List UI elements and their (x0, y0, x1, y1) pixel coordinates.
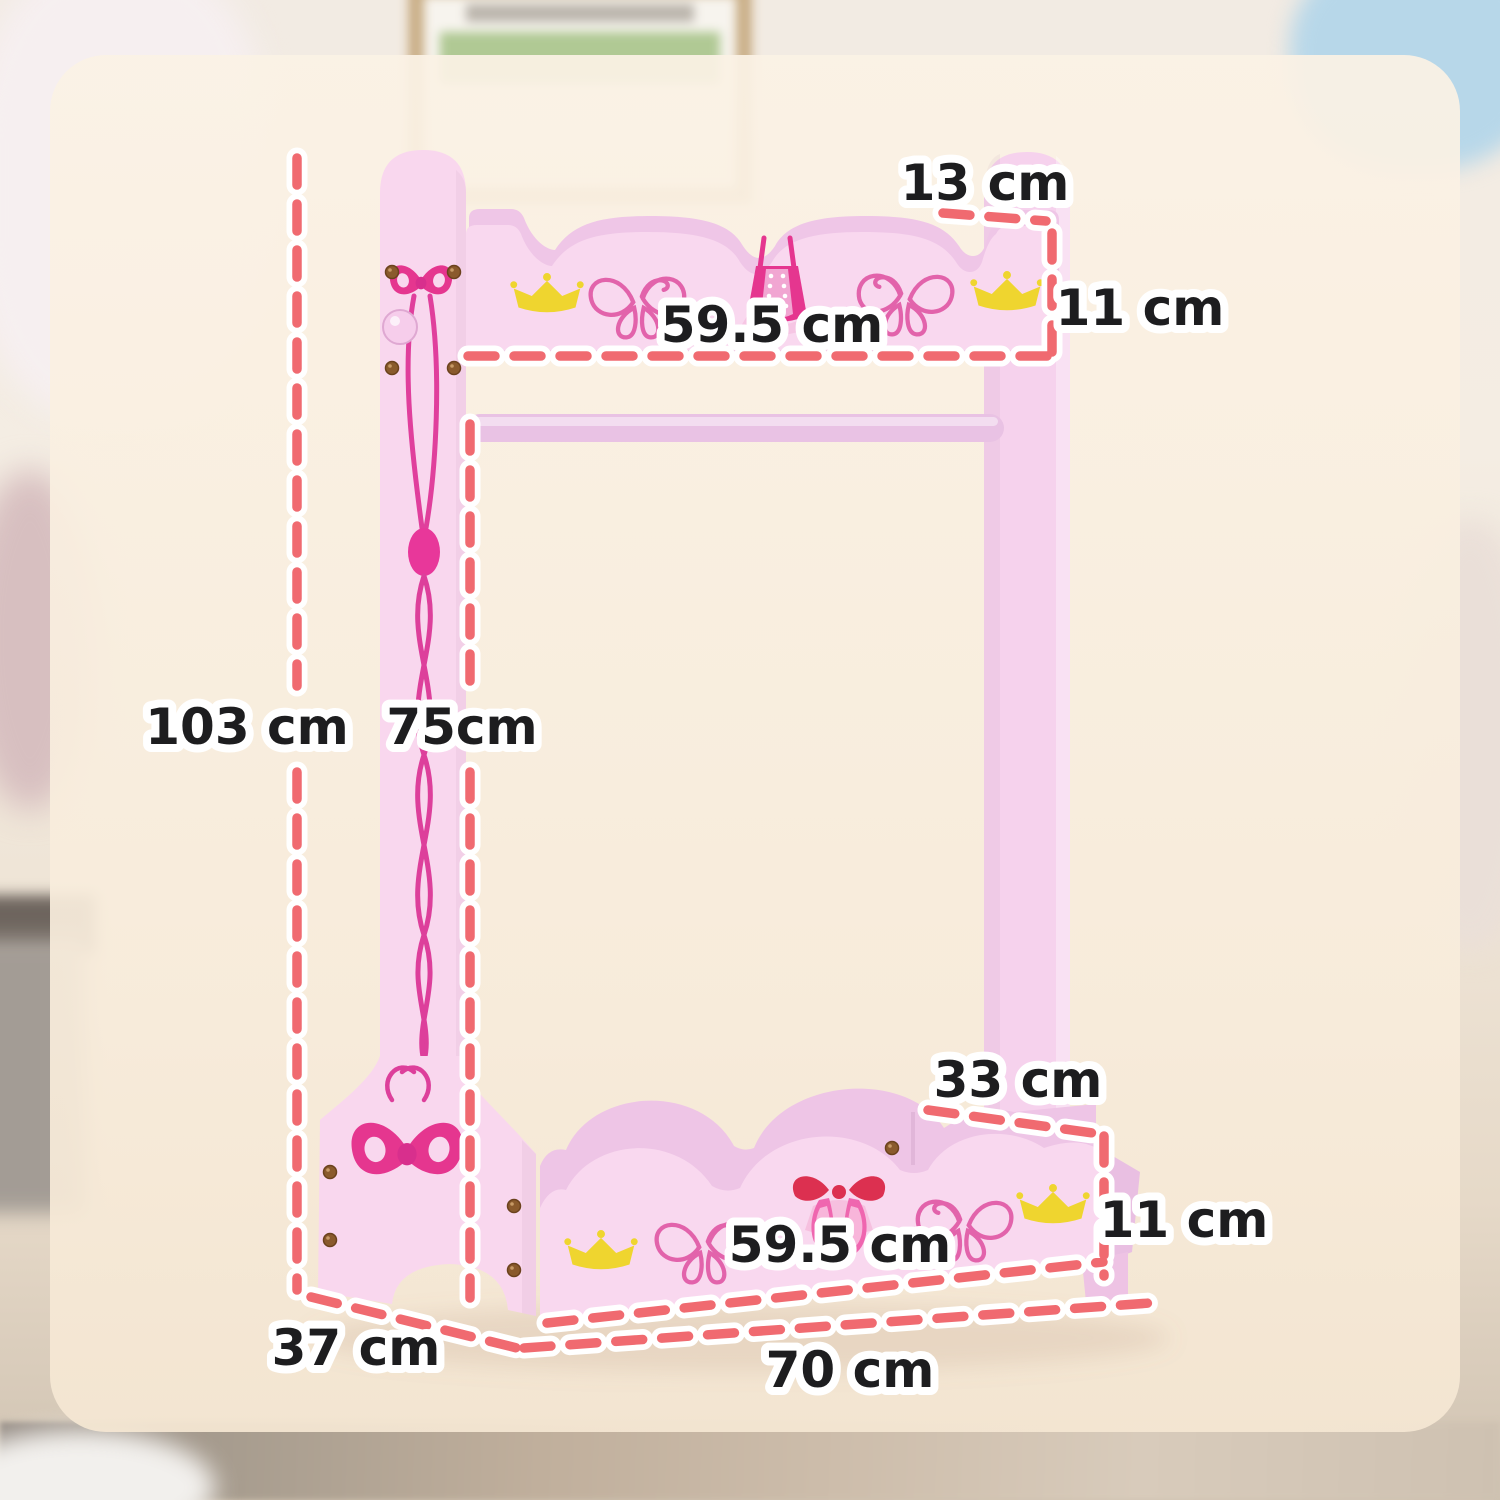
left-leg (318, 1056, 536, 1316)
svg-text:59.5 cm: 59.5 cm (661, 296, 884, 354)
hanging-rod (466, 414, 1004, 442)
oval-ornament (408, 528, 440, 576)
clothes-rack-diagram: 13 cm 13 cm 11 cm 11 cm 59.5 cm 59.5 cm … (0, 0, 1500, 1500)
svg-text:70 cm: 70 cm (766, 1341, 935, 1399)
label-overall-height: 103 cm 103 cm (145, 698, 349, 756)
label-tray-depth: 33 cm 33 cm (934, 1051, 1103, 1109)
label-overall-width: 70 cm 70 cm (766, 1341, 935, 1399)
svg-text:13 cm: 13 cm (901, 154, 1070, 212)
svg-text:103 cm: 103 cm (145, 698, 349, 756)
label-base-depth: 37 cm 37 cm (272, 1319, 441, 1377)
svg-text:37 cm: 37 cm (272, 1319, 441, 1377)
svg-text:33 cm: 33 cm (934, 1051, 1103, 1109)
label-top-shelf-height: 11 cm 11 cm (1056, 279, 1225, 337)
product-dimension-diagram: 13 cm 13 cm 11 cm 11 cm 59.5 cm 59.5 cm … (0, 0, 1500, 1500)
left-panel (380, 150, 466, 1090)
svg-text:11 cm: 11 cm (1056, 279, 1225, 337)
svg-text:11 cm: 11 cm (1100, 1191, 1269, 1249)
label-hanging-height: 75cm 75cm (386, 698, 537, 756)
label-tray-height: 11 cm 11 cm (1100, 1191, 1269, 1249)
label-top-shelf-width: 59.5 cm 59.5 cm (661, 296, 884, 354)
label-top-depth: 13 cm 13 cm (901, 154, 1070, 212)
svg-text:59.5 cm: 59.5 cm (729, 1216, 952, 1274)
hook-knob (383, 310, 417, 344)
svg-text:75cm: 75cm (386, 698, 537, 756)
label-tray-width: 59.5 cm 59.5 cm (729, 1216, 952, 1274)
